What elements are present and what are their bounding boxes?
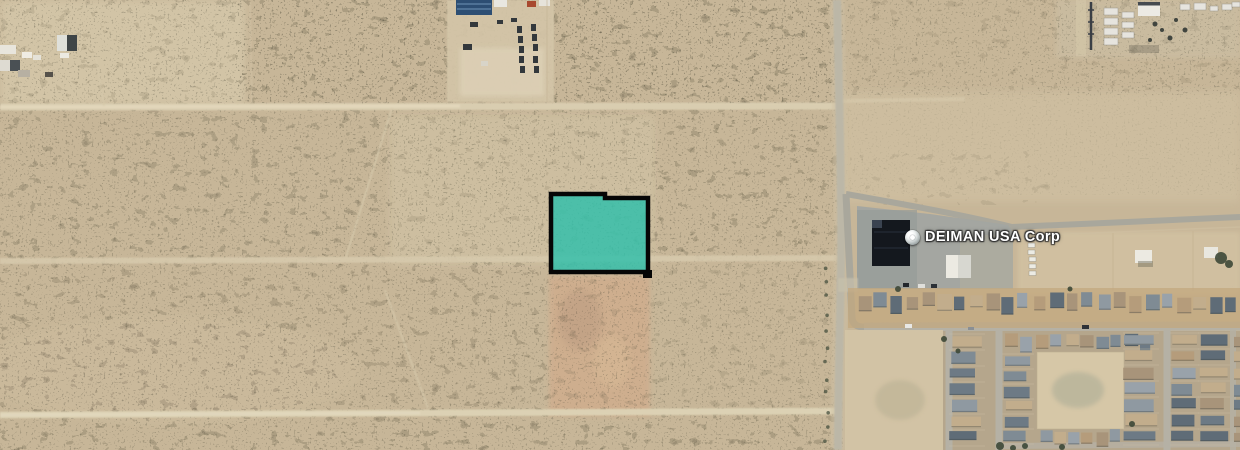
house-roof (1225, 297, 1236, 312)
house-roof (873, 292, 886, 307)
house-roof (890, 296, 901, 314)
house-roof (1146, 295, 1160, 311)
house-roof (1005, 417, 1029, 428)
house-roof (1124, 399, 1154, 412)
tree (1225, 260, 1233, 268)
tree (895, 286, 901, 292)
house-roof (1173, 368, 1196, 379)
house-roof (952, 336, 981, 348)
house-roof (923, 292, 935, 306)
house-roof (1234, 385, 1240, 397)
house-roof (1001, 297, 1013, 315)
place-marker-icon[interactable] (905, 230, 920, 245)
tree (996, 442, 1004, 450)
house-roof (1067, 293, 1077, 310)
house-roof (1114, 292, 1126, 308)
house-roof (1172, 398, 1196, 408)
house-roof (937, 294, 952, 311)
satellite-imagery (0, 0, 1240, 450)
house-roof (1004, 371, 1027, 381)
house-roof (1097, 432, 1109, 447)
parcel-corner-mark (643, 270, 652, 278)
house-roof (950, 368, 975, 377)
house-roof (1200, 398, 1224, 409)
map-viewport[interactable]: DEIMAN USA Corp (0, 0, 1240, 450)
house-roof (1020, 337, 1032, 353)
house-roof (1034, 296, 1045, 310)
tree (1068, 287, 1073, 292)
house-roof (1068, 432, 1079, 444)
house-roof (1201, 334, 1228, 345)
house-roof (1005, 356, 1030, 366)
house-roof (1172, 415, 1195, 427)
house-roof (1125, 382, 1155, 394)
poi-label[interactable]: DEIMAN USA Corp (905, 227, 1060, 247)
tree (1059, 444, 1065, 450)
house-roof (1080, 335, 1094, 347)
house-roof (1171, 431, 1193, 441)
marker-dot (910, 235, 915, 240)
house-roof (1200, 431, 1228, 441)
house-roof (1110, 429, 1120, 442)
house-roof (952, 400, 977, 412)
house-roof (1234, 337, 1240, 347)
house-roof (1172, 335, 1197, 345)
house-roof (1054, 432, 1066, 445)
house-roof (1123, 368, 1153, 380)
house-roof (1200, 368, 1228, 378)
tree (1022, 443, 1028, 449)
house-roof (951, 352, 975, 364)
tree (1129, 421, 1135, 427)
dirt-road-middle (0, 258, 838, 261)
house-roof (1234, 417, 1240, 427)
house-roof (1171, 351, 1194, 361)
facility-north (447, 0, 554, 102)
tree (1215, 252, 1227, 264)
house-roof (954, 297, 964, 311)
house-roof (1234, 400, 1240, 410)
house-roof (950, 383, 975, 395)
red-truck (527, 1, 536, 7)
house-roof (1177, 298, 1191, 314)
house-roof (1124, 431, 1156, 440)
house-roof (1041, 430, 1053, 442)
house-roof (1081, 292, 1092, 307)
house-roof (1110, 335, 1120, 347)
tree (956, 349, 961, 354)
blue-roof-building (456, 0, 492, 15)
house-roof (949, 431, 976, 440)
dirt-road-vertical (837, 0, 841, 450)
house-roof (1036, 335, 1048, 349)
house-roof (1234, 433, 1240, 442)
house-roof (1210, 297, 1222, 314)
poi-label-text: DEIMAN USA Corp (925, 229, 1060, 245)
house-roof (1234, 369, 1240, 380)
parcel-overlay-group (551, 194, 652, 278)
house-roof (1003, 431, 1025, 442)
house-roof (1125, 350, 1152, 361)
house-roof (1234, 351, 1240, 362)
house-roof (1099, 295, 1111, 310)
house-roof (1006, 401, 1032, 410)
house-roof (1193, 297, 1206, 310)
house-roof (1124, 335, 1154, 345)
house-roof (1004, 387, 1030, 399)
house-roof (907, 297, 918, 310)
house-roof (1066, 334, 1079, 346)
house-roof (1017, 293, 1027, 308)
house-roof (970, 295, 983, 307)
house-roof (1050, 293, 1064, 309)
house-roof (1162, 294, 1172, 308)
highlighted-parcel[interactable] (551, 194, 648, 272)
house-roof (1097, 337, 1110, 349)
house-roof (1005, 333, 1018, 347)
house-roof (952, 417, 982, 428)
house-roof (1171, 384, 1192, 396)
house-roof (1129, 296, 1141, 313)
house-roof (1081, 433, 1092, 444)
house-roof (1201, 416, 1225, 426)
house-roof (1050, 334, 1061, 346)
house-roof (1201, 383, 1226, 394)
house-roof (987, 293, 1001, 310)
house-roof (1201, 350, 1225, 360)
tree (941, 336, 947, 342)
house-roof (859, 296, 872, 311)
